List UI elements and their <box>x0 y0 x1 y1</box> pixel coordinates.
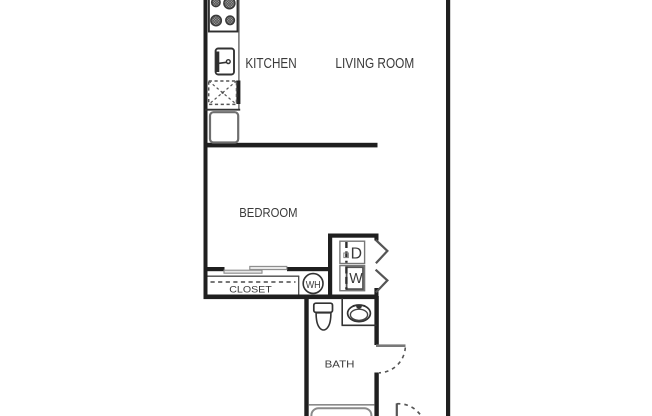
svg-text:KITCHEN: KITCHEN <box>245 56 296 72</box>
svg-text:WH: WH <box>306 280 321 291</box>
svg-text:CLOSET: CLOSET <box>229 284 272 294</box>
svg-text:BATH: BATH <box>325 360 355 371</box>
svg-text:BEDROOM: BEDROOM <box>239 205 297 220</box>
svg-text:W: W <box>349 271 363 287</box>
svg-text:LIVING ROOM: LIVING ROOM <box>335 56 414 72</box>
svg-text:D: D <box>351 246 362 263</box>
